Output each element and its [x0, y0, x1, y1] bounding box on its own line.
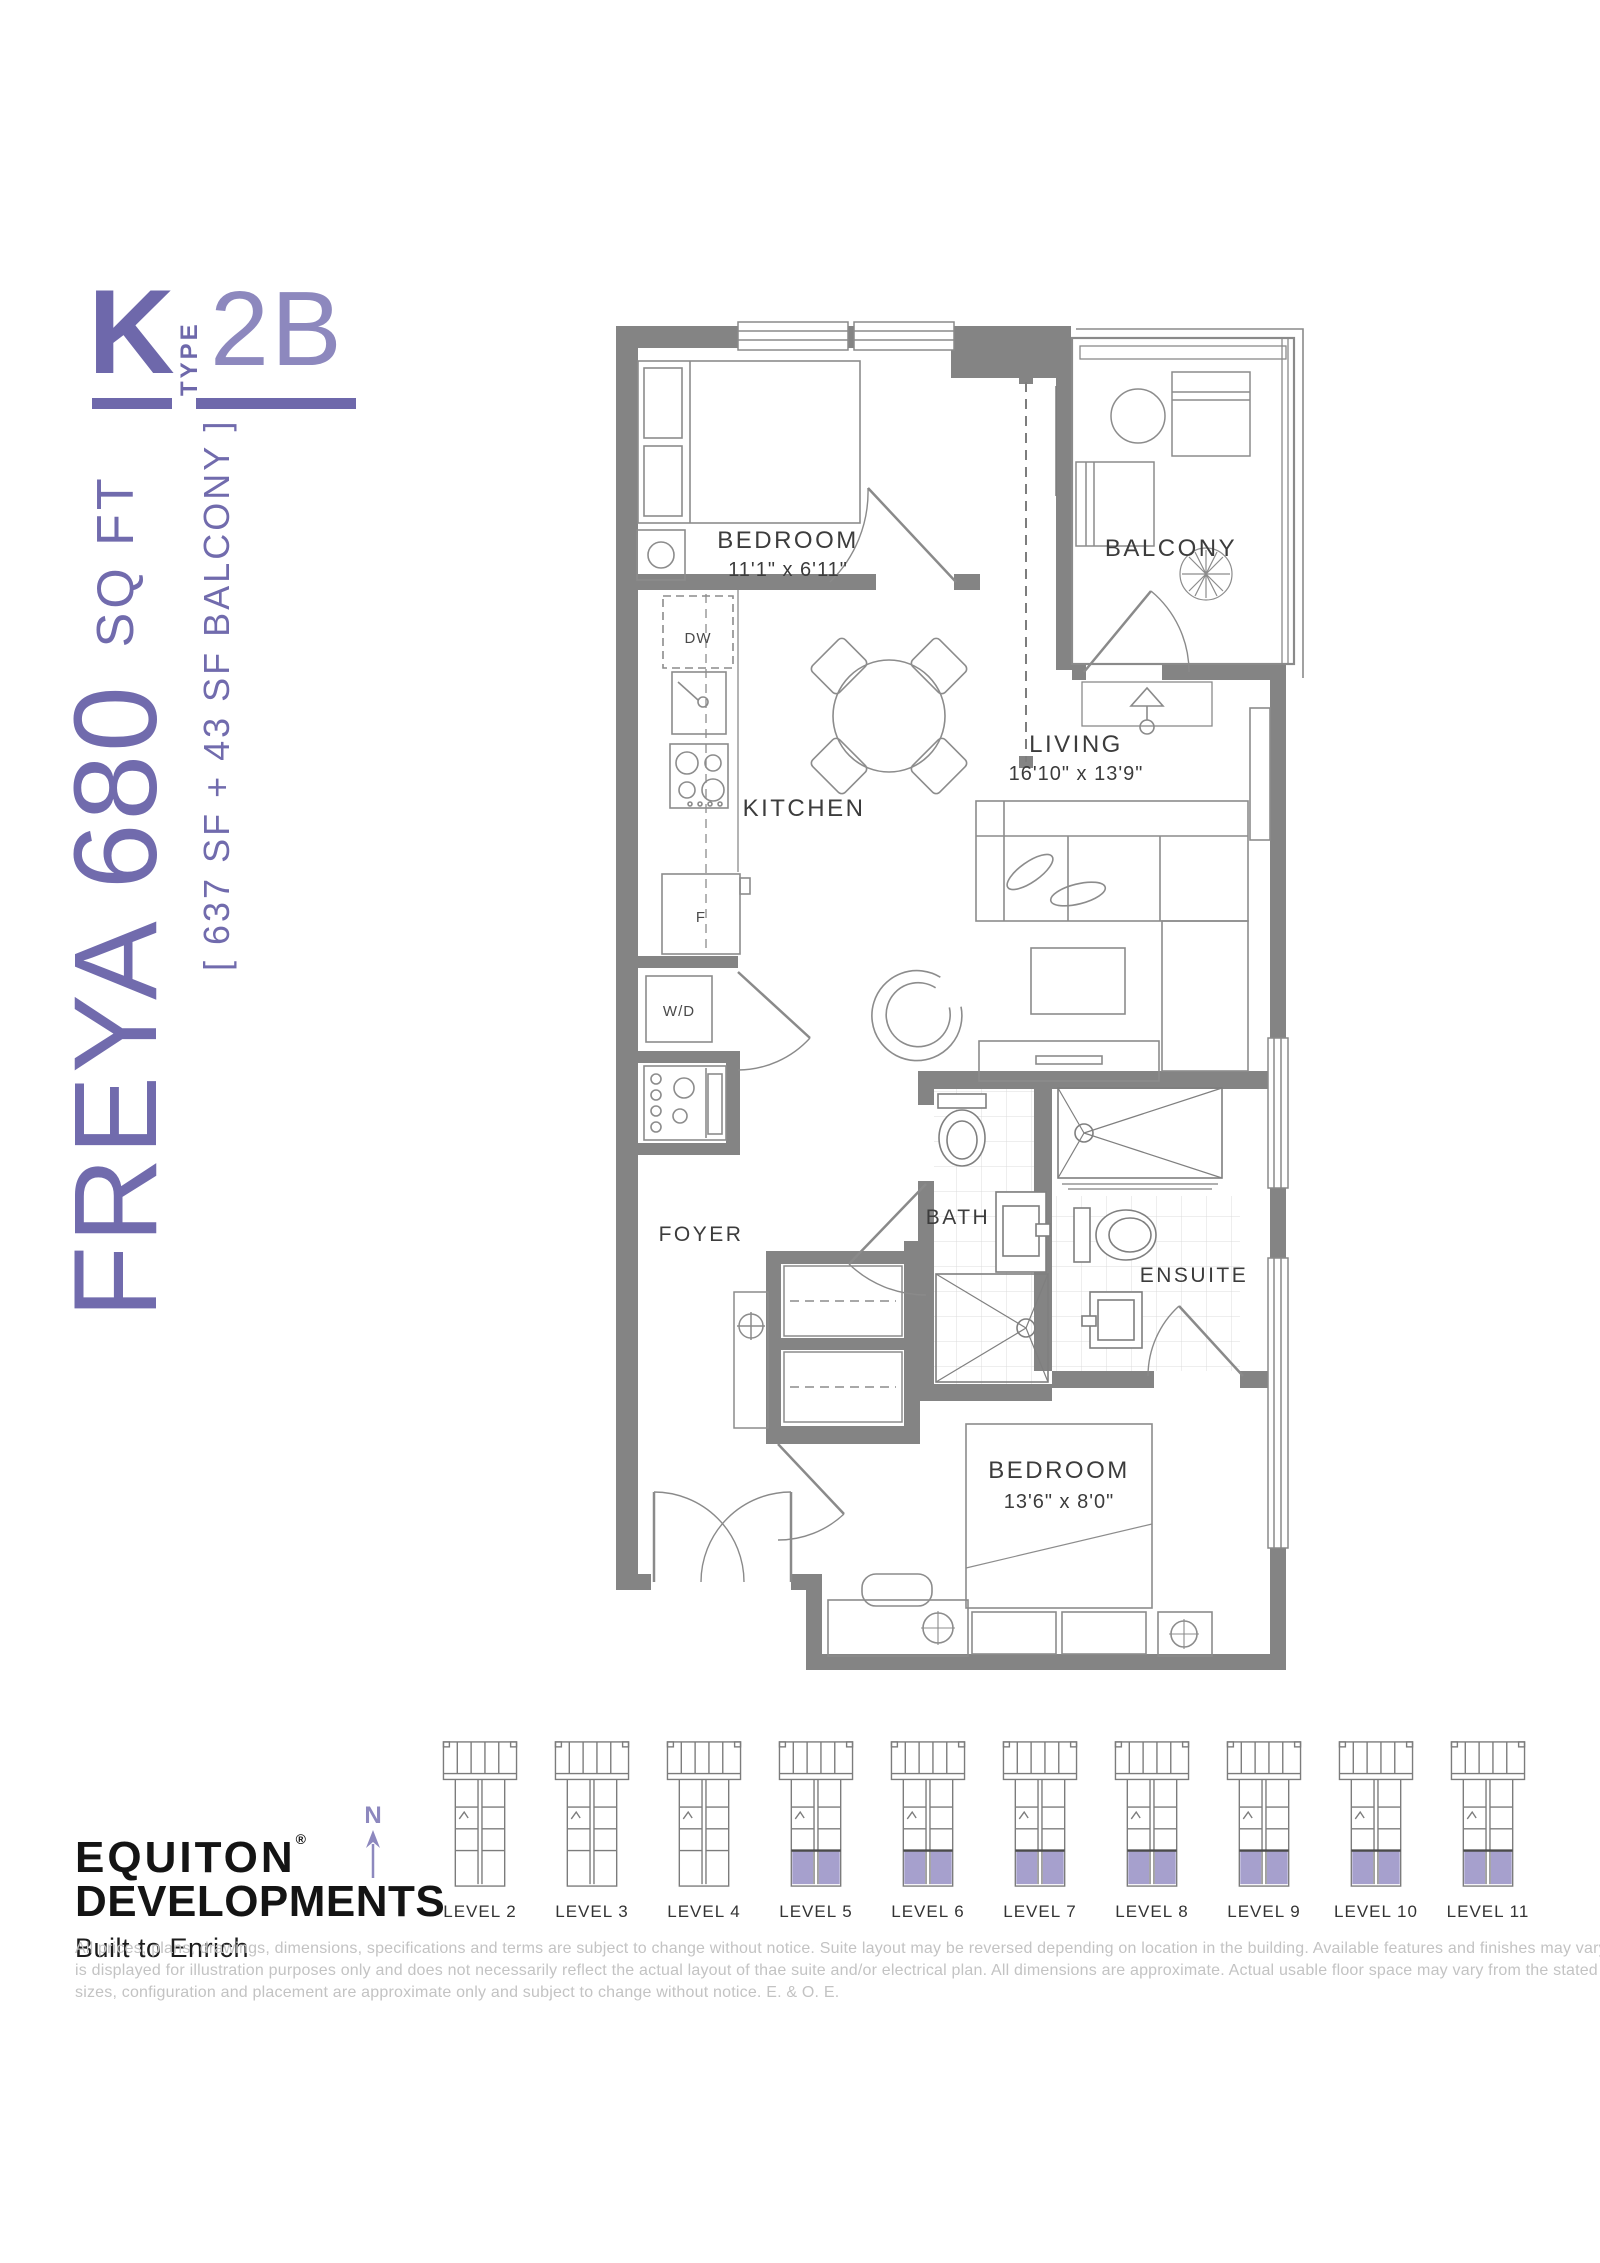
disclaimer-line-2: is displayed for illustration purposes o…	[75, 1960, 1600, 1982]
lounge-chair	[854, 955, 976, 1078]
level-thumbnail	[1331, 1736, 1421, 1894]
bedroom2-label: BEDROOM	[988, 1457, 1130, 1484]
level-label: LEVEL 8	[1115, 1902, 1188, 1922]
floor-plan: BEDROOM 11'1" x 6'11" BALCONY LIVING 16'…	[606, 316, 1316, 1686]
foyer-panel	[734, 1292, 768, 1428]
dining-set	[809, 636, 968, 795]
suite-highlight	[1239, 1851, 1288, 1885]
level-thumbnail	[1443, 1736, 1533, 1894]
level-item: LEVEL 8	[1096, 1736, 1208, 1922]
disclaimer: All prices, plans, drawings, dimensions,…	[75, 1938, 1600, 2004]
door-swing-indicator	[1082, 682, 1212, 734]
living-label: LIVING	[1029, 731, 1123, 758]
suite-highlight	[1015, 1851, 1064, 1885]
suite-highlight	[1127, 1851, 1176, 1885]
bath-sink	[996, 1192, 1050, 1272]
entry-door-left	[654, 1492, 744, 1582]
entry-door-right	[701, 1492, 791, 1582]
living-dims: 16'10" x 13'9"	[1009, 763, 1144, 785]
level-item: LEVEL 4	[648, 1736, 760, 1922]
north-label: N	[364, 1804, 381, 1828]
level-label: LEVEL 4	[667, 1902, 740, 1922]
bedroom2-dims: 13'6" x 8'0"	[1004, 1491, 1115, 1513]
level-item: LEVEL 9	[1208, 1736, 1320, 1922]
sliding-partition	[1026, 382, 1056, 762]
bedroom1-dims: 11'1" x 6'11"	[728, 559, 848, 581]
balcony-label: BALCONY	[1105, 535, 1237, 562]
level-thumbnail	[659, 1736, 749, 1894]
console-table	[1250, 708, 1270, 840]
ensuite-sink	[1082, 1292, 1142, 1348]
level-label: LEVEL 10	[1334, 1902, 1418, 1922]
coffee-table	[1031, 948, 1125, 1014]
level-item: LEVEL 10	[1320, 1736, 1432, 1922]
kitchen-sink	[672, 672, 726, 734]
plan-letter-underline	[92, 398, 172, 409]
laundry-door	[738, 972, 810, 1070]
kitchen-label: KITCHEN	[743, 795, 866, 822]
level-thumbnail	[883, 1736, 973, 1894]
level-thumbnail	[1219, 1736, 1309, 1894]
level-item: LEVEL 11	[1432, 1736, 1544, 1922]
type-underline	[196, 398, 356, 409]
brand-line2: DEVELOPMENTS	[75, 1880, 445, 1924]
type-label: TYPE	[176, 296, 204, 396]
suite-name: FREYA 680	[50, 647, 182, 1318]
level-label: LEVEL 6	[891, 1902, 964, 1922]
level-item: LEVEL 6	[872, 1736, 984, 1922]
level-thumbnail	[1107, 1736, 1197, 1894]
disclaimer-line-1: All prices, plans, drawings, dimensions,…	[75, 1938, 1600, 1960]
nightstand	[1158, 1612, 1212, 1656]
ensuite-toilet	[1074, 1208, 1156, 1262]
ensuite-label: ENSUITE	[1140, 1264, 1249, 1287]
level-item: LEVEL 3	[536, 1736, 648, 1922]
type-value: 2B	[210, 276, 344, 382]
floorplan-sheet: K TYPE 2B FREYA 680 SQ FT [ 637 SF + 43 …	[0, 0, 1600, 2263]
ensuite-shower	[1058, 1088, 1222, 1189]
suite-highlight	[903, 1851, 952, 1885]
bedroom1-label: BEDROOM	[717, 527, 859, 554]
dishwasher-label: DW	[685, 630, 712, 647]
disclaimer-line-3: sizes, configuration and placement are a…	[75, 1982, 1600, 2004]
suite-area-note: [ 637 SF + 43 SF BALCONY ]	[196, 418, 238, 1318]
level-thumbnail	[547, 1736, 637, 1894]
level-item: LEVEL 7	[984, 1736, 1096, 1922]
suite-name-area: FREYA 680 SQ FT	[48, 418, 184, 1318]
level-item: LEVEL 5	[760, 1736, 872, 1922]
sectional-sofa	[976, 801, 1248, 1071]
desk	[828, 1574, 968, 1656]
level-label: LEVEL 9	[1227, 1902, 1300, 1922]
suite-highlight	[1463, 1851, 1512, 1885]
fridge-label: F	[696, 909, 706, 926]
brand-line1: EQUITON®	[75, 1832, 445, 1880]
suite-highlight	[791, 1851, 840, 1885]
suite-area-unit: SQ FT	[87, 474, 145, 647]
plan-letter: K	[88, 272, 173, 392]
registered-mark: ®	[296, 1831, 309, 1847]
level-thumbnail	[995, 1736, 1085, 1894]
utility-appliance	[644, 1066, 726, 1140]
bath-label: BATH	[926, 1206, 990, 1229]
suite-highlight	[1351, 1851, 1400, 1885]
cooktop	[670, 744, 728, 808]
balcony-walls	[1072, 329, 1303, 678]
washer-dryer-label: W/D	[663, 1003, 695, 1020]
bath-toilet	[938, 1094, 986, 1166]
level-label: LEVEL 7	[1003, 1902, 1076, 1922]
level-label: LEVEL 5	[779, 1902, 852, 1922]
level-label: LEVEL 11	[1447, 1902, 1530, 1922]
level-key-strip: LEVEL 2 LEVEL 3	[424, 1736, 1554, 1922]
level-label: LEVEL 2	[443, 1902, 516, 1922]
level-thumbnail	[435, 1736, 525, 1894]
foyer-label: FOYER	[659, 1223, 744, 1246]
level-label: LEVEL 3	[555, 1902, 628, 1922]
level-thumbnail	[771, 1736, 861, 1894]
